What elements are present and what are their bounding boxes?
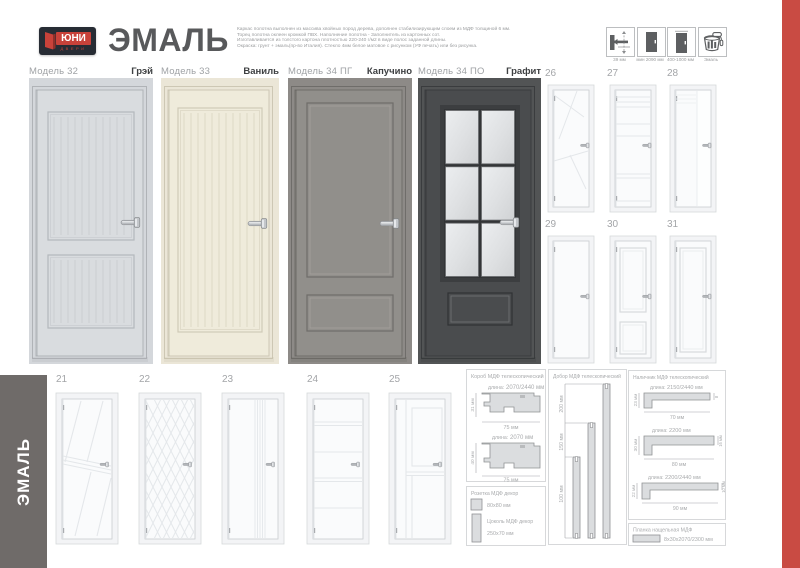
svg-text:22 мм: 22 мм [631,485,636,498]
svg-text:100 мм: 100 мм [559,485,565,503]
svg-text:90 мм: 90 мм [673,506,688,512]
svg-text:80 мм: 80 мм [672,462,687,468]
svg-text:длина:: длина: [652,428,668,434]
svg-text:8х30х2070/2300 мм: 8х30х2070/2300 мм [664,537,713,543]
svg-text:Розетка МДФ декор: Розетка МДФ декор [471,491,518,497]
svg-text:2070/2440 мм: 2070/2440 мм [506,385,544,391]
svg-text:длина:: длина: [488,385,504,391]
svg-text:2070 мм: 2070 мм [510,435,533,441]
svg-text:40 мм: 40 мм [470,451,476,464]
svg-text:10 мм: 10 мм [721,481,726,493]
svg-text:75 мм: 75 мм [504,478,519,483]
svg-text:31 мм: 31 мм [470,398,476,411]
svg-text:2200 мм: 2200 мм [669,428,691,434]
svg-text:Добор МДФ телескопический: Добор МДФ телескопический [553,373,621,380]
svg-text:2150/2440 мм: 2150/2440 мм [667,385,703,391]
svg-text:75 мм: 75 мм [504,425,519,431]
svg-text:длина:: длина: [648,475,664,481]
svg-text:Планка нащельная МДФ: Планка нащельная МДФ [633,528,692,534]
svg-text:30 мм: 30 мм [633,439,638,452]
svg-text:150 мм: 150 мм [559,433,565,451]
svg-text:16 мм: 16 мм [718,435,723,447]
svg-text:Цоколь МДФ декор: Цоколь МДФ декор [487,519,533,525]
svg-text:длина:: длина: [492,435,508,441]
svg-text:2200/2440 мм: 2200/2440 мм [665,475,701,481]
svg-text:70 мм: 70 мм [670,415,685,421]
svg-text:250х70 мм: 250х70 мм [487,531,514,537]
svg-text:Короб МДФ телескопический: Короб МДФ телескопический [471,373,544,380]
svg-text:200 мм: 200 мм [559,395,565,413]
svg-text:Наличник МДФ телескопический: Наличник МДФ телескопический [633,374,709,381]
svg-text:23 мм: 23 мм [633,394,638,407]
svg-text:80х80 мм: 80х80 мм [487,503,511,509]
svg-text:длина:: длина: [650,385,666,391]
